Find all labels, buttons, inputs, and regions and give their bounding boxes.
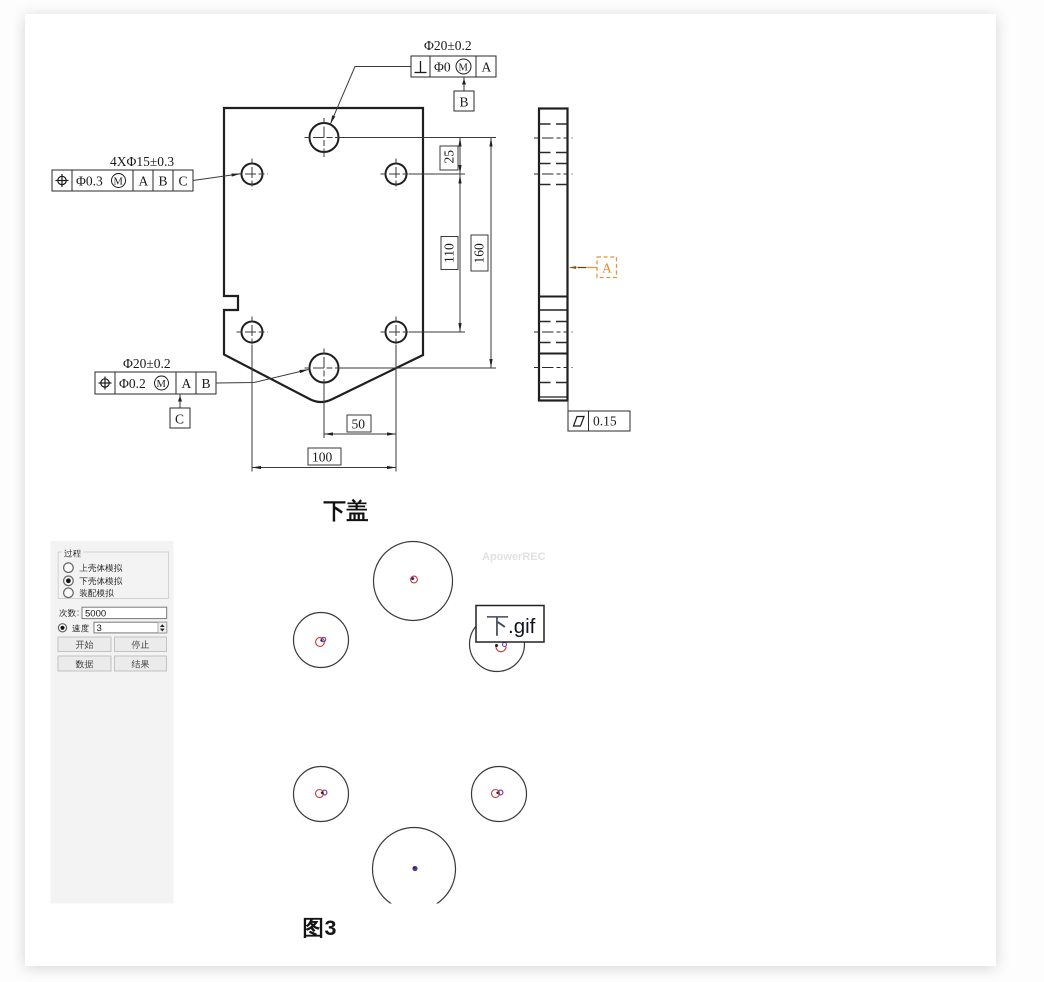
svg-text:A: A xyxy=(602,261,612,276)
svg-text:M: M xyxy=(114,177,124,188)
svg-text:A: A xyxy=(139,174,149,189)
svg-text:B: B xyxy=(460,95,469,110)
svg-text:3: 3 xyxy=(97,623,102,634)
svg-text:Φ20±0.2: Φ20±0.2 xyxy=(424,38,472,53)
svg-text:25: 25 xyxy=(442,150,457,164)
svg-text:ApowerREC: ApowerREC xyxy=(482,551,546,563)
svg-text:C: C xyxy=(179,174,188,189)
svg-text::: : xyxy=(77,607,80,617)
svg-text:A: A xyxy=(482,60,492,75)
svg-text:3: 3 xyxy=(325,916,337,940)
svg-text:160: 160 xyxy=(472,243,487,264)
svg-text:5000: 5000 xyxy=(85,608,106,619)
svg-text:50: 50 xyxy=(352,417,366,432)
svg-text:A: A xyxy=(182,376,192,391)
svg-text:.gif: .gif xyxy=(508,615,536,638)
svg-text:Φ0.2: Φ0.2 xyxy=(119,376,146,391)
svg-text:Φ20±0.2: Φ20±0.2 xyxy=(123,356,171,371)
svg-text:110: 110 xyxy=(442,243,457,263)
svg-text:0.15: 0.15 xyxy=(593,414,617,429)
svg-text:C: C xyxy=(175,412,184,427)
svg-text:Φ0.3: Φ0.3 xyxy=(76,174,103,189)
svg-text:Φ0: Φ0 xyxy=(434,60,451,75)
svg-text:M: M xyxy=(459,63,469,74)
svg-text:100: 100 xyxy=(312,450,333,465)
svg-text:M: M xyxy=(157,379,167,390)
svg-text:B: B xyxy=(202,376,211,391)
svg-text:4XΦ15±0.3: 4XΦ15±0.3 xyxy=(110,154,174,169)
svg-text:B: B xyxy=(159,174,168,189)
